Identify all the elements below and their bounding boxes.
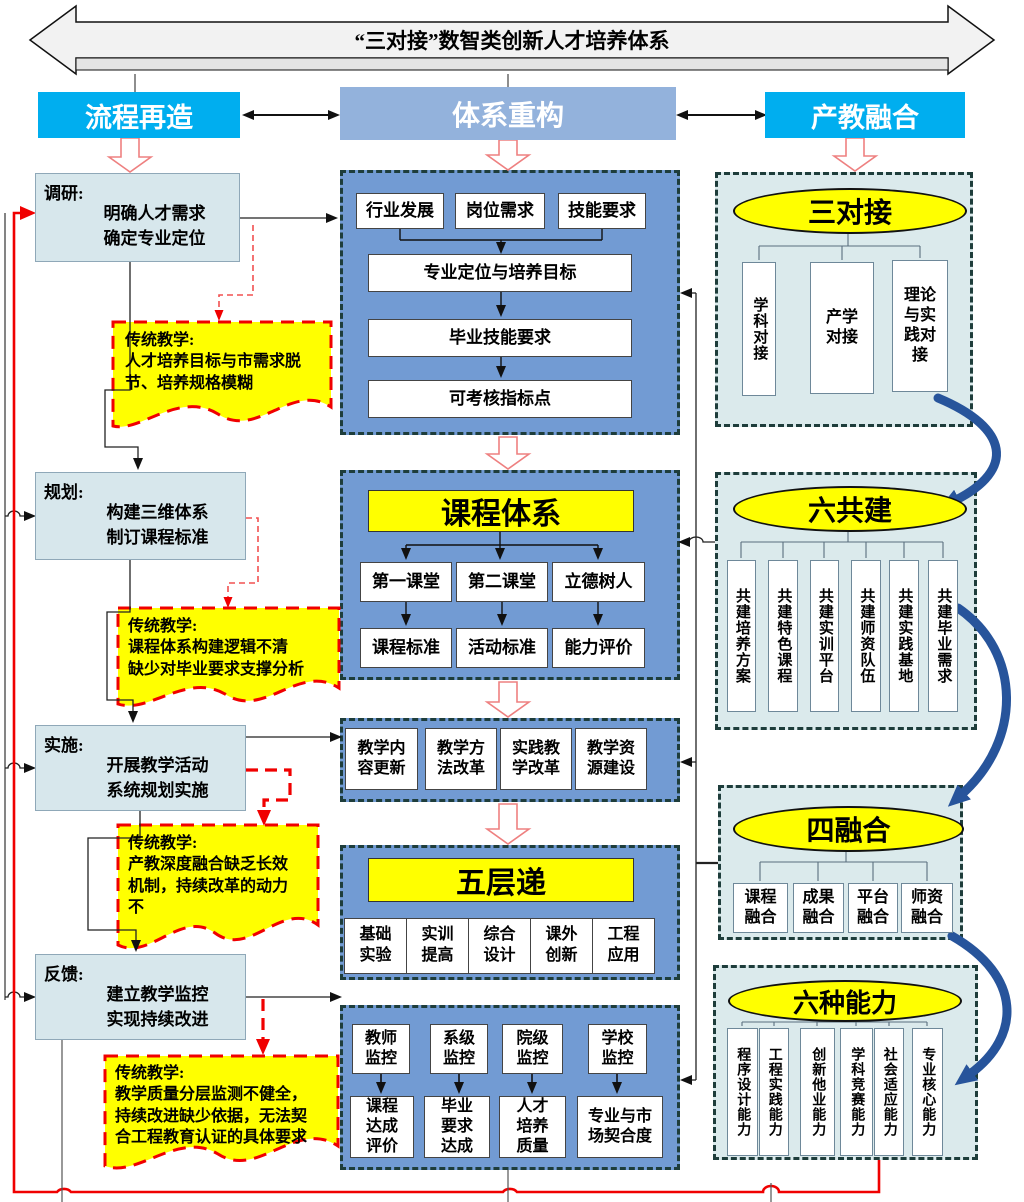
box-discipline-docking: 学科对接 (742, 262, 776, 396)
box-competition-ability: 学科竞赛能力 (840, 1028, 873, 1156)
note-traditional-4: 传统教学: 教学质量分层监测不健全， 持续改进缺少依据，无法契 合工程教育认证的… (115, 1063, 307, 1149)
box-practice-reform: 实践教学改革 (500, 728, 572, 790)
box-teacher-monitor: 教师监控 (352, 1024, 410, 1074)
box-positioning-goal: 专业定位与培养目标 (368, 254, 632, 292)
ellipse-six-cobuild: 六共建 (733, 486, 967, 532)
box-talent-quality: 人才培养质量 (499, 1096, 566, 1158)
box-skill-req: 技能要求 (558, 193, 646, 229)
box-ability-evaluation: 能力评价 (552, 628, 645, 668)
box-social-adapt-ability: 社会适应能力 (874, 1028, 904, 1156)
five-level-cells: 基础实验 实训提高 综合设计 课外创新 工程应用 (345, 918, 655, 974)
box-cobuild-practice-base: 共建实践基地 (889, 560, 919, 712)
box-cobuild-courses: 共建特色课程 (768, 560, 798, 712)
box-faculty-fusion: 师资融合 (901, 883, 953, 933)
title-five-levels: 五层递 (368, 858, 634, 902)
cell-training: 实训提高 (406, 918, 469, 974)
box-market-fit: 专业与市场契合度 (577, 1096, 663, 1158)
box-cobuild-graduation-demand: 共建毕业需求 (928, 560, 958, 712)
ellipse-four-fusion: 四融合 (733, 806, 964, 852)
box-industry-dev: 行业发展 (356, 193, 444, 229)
step-feedback: 反馈: 建立教学监控实现持续改进 (35, 954, 246, 1040)
diagram-canvas: “三对接”数智类创新人才培养体系 流程再造 体系重构 产教融合 调研: 明确人才… (0, 0, 1024, 1202)
cell-comprehensive-design: 综合设计 (468, 918, 531, 974)
ellipse-three-docking: 三对接 (733, 188, 967, 234)
cell-engineering-app: 工程应用 (592, 918, 655, 974)
title-curriculum-system: 课程体系 (368, 490, 634, 532)
box-industry-study-docking: 产学对接 (810, 262, 874, 394)
right-bus (688, 293, 718, 1080)
box-cobuild-faculty: 共建师资队伍 (851, 560, 881, 712)
header-process-reengineering: 流程再造 (38, 92, 240, 138)
header-system-rebuild: 体系重构 (340, 87, 676, 140)
box-cobuild-training-platform: 共建实训平台 (810, 560, 839, 712)
box-moral-education: 立德树人 (552, 562, 645, 602)
box-activity-standard: 活动标准 (456, 628, 548, 668)
box-achievement-fusion: 成果融合 (793, 883, 844, 933)
box-second-class: 第二课堂 (456, 562, 548, 602)
box-method-reform: 教学方法改革 (425, 728, 497, 790)
header-industry-education: 产教融合 (765, 92, 965, 138)
box-dept-monitor: 系级监控 (430, 1024, 488, 1074)
box-content-update: 教学内容更新 (345, 728, 418, 790)
box-first-class: 第一课堂 (360, 562, 452, 602)
note-traditional-1: 传统教学: 人才培养目标与市需求脱 节、培养规格模糊 (125, 330, 301, 394)
box-resource-build: 教学资源建设 (575, 728, 647, 790)
box-cobuild-plan: 共建培养方案 (727, 560, 756, 712)
step-label: 实施: (44, 731, 84, 756)
left-rail-branches (5, 511, 26, 997)
box-core-professional-ability: 专业核心能力 (912, 1028, 943, 1156)
box-post-demand: 岗位需求 (455, 193, 545, 229)
box-course-standard: 课程标准 (360, 628, 452, 668)
box-graduate-skill: 毕业技能要求 (368, 319, 632, 357)
step-planning: 规划: 构建三维体系制订课程标准 (35, 472, 246, 560)
step-label: 规划: (44, 478, 84, 503)
step-label: 调研: (44, 179, 84, 204)
box-course-attainment: 课程达成评价 (350, 1096, 414, 1158)
step-label: 反馈: (44, 960, 84, 985)
box-theory-practice-docking: 理论与实践对接 (892, 260, 948, 392)
cell-extracurricular: 课外创新 (530, 918, 593, 974)
note-traditional-2: 传统教学: 课程体系构建逻辑不清 缺少对毕业要求支撑分析 (128, 616, 304, 680)
ellipse-six-abilities: 六种能力 (728, 980, 962, 1022)
step-implementation: 实施: 开展教学活动系统规划实施 (35, 725, 246, 811)
g5-arrows (381, 1074, 617, 1084)
box-engineering-practice-ability: 工程实践能力 (759, 1028, 789, 1156)
box-innovation-ability: 创新他业能力 (800, 1028, 835, 1156)
box-programming-ability: 程序设计能力 (727, 1028, 758, 1156)
cell-basic-exp: 基础实验 (344, 918, 407, 974)
box-school-monitor: 学校监控 (588, 1024, 647, 1074)
note-traditional-3: 传统教学: 产教深度融合缺乏长效 机制，持续改革的动力 不 (128, 833, 288, 919)
box-graduation-attainment: 毕业要求达成 (424, 1096, 490, 1158)
step-research: 调研: 明确人才需求确定专业定位 (35, 173, 240, 262)
box-assessable-indicator: 可考核指标点 (368, 380, 632, 418)
box-platform-fusion: 平台融合 (848, 883, 898, 933)
box-college-monitor: 院级监控 (502, 1024, 563, 1074)
banner-title: “三对接”数智类创新人才培养体系 (80, 24, 944, 56)
box-course-fusion: 课程融合 (733, 883, 788, 933)
